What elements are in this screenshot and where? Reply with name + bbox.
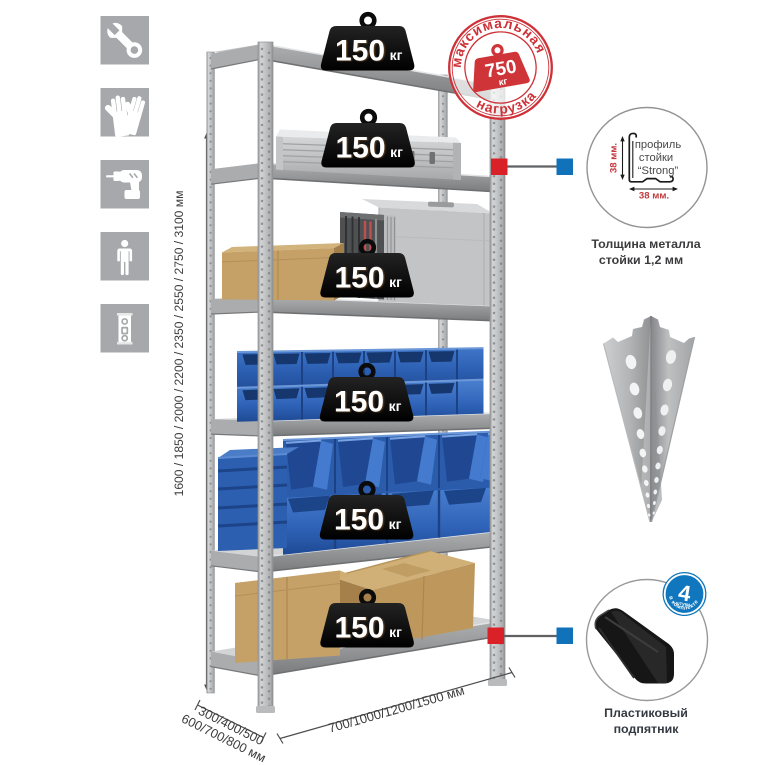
svg-text:кг: кг	[390, 47, 403, 63]
svg-text:Толщина металла: Толщина металла	[591, 237, 700, 251]
svg-text:150: 150	[334, 612, 384, 645]
svg-text:1600 / 1850 / 2000 / 2200 / 23: 1600 / 1850 / 2000 / 2200 / 2350 / 2550 …	[172, 191, 186, 497]
svg-text:150: 150	[335, 35, 385, 68]
svg-text:“Strong”: “Strong”	[638, 165, 679, 177]
svg-text:кг: кг	[389, 398, 402, 414]
svg-text:38 мм.: 38 мм.	[609, 143, 620, 173]
svg-text:стойки 1,2 мм: стойки 1,2 мм	[599, 253, 683, 267]
svg-text:подпятник: подпятник	[614, 722, 680, 736]
svg-text:кг: кг	[389, 624, 402, 640]
svg-text:кг: кг	[389, 274, 402, 290]
svg-text:150: 150	[335, 132, 385, 165]
svg-text:150: 150	[334, 262, 384, 295]
svg-text:кг: кг	[389, 516, 402, 532]
svg-text:профиль: профиль	[635, 139, 681, 151]
svg-text:стойки: стойки	[639, 152, 673, 164]
svg-text:150: 150	[334, 504, 384, 537]
svg-text:кг: кг	[390, 144, 403, 160]
svg-text:38 мм.: 38 мм.	[639, 191, 669, 202]
svg-text:Пластиковый: Пластиковый	[604, 706, 688, 720]
svg-text:150: 150	[334, 386, 384, 419]
